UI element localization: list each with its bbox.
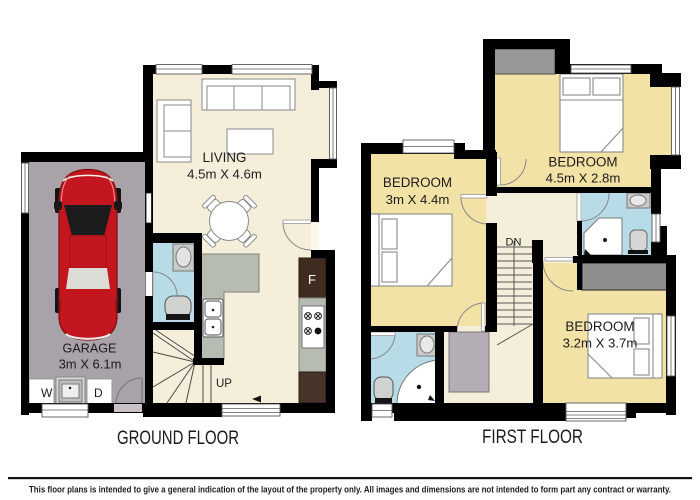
svg-text:3m X 6.1m: 3m X 6.1m (59, 357, 122, 372)
svg-text:GROUND FLOOR: GROUND FLOOR (117, 428, 239, 449)
svg-text:BEDROOM: BEDROOM (548, 155, 617, 170)
svg-text:DN: DN (506, 237, 522, 249)
svg-text:GARAGE: GARAGE (63, 342, 117, 356)
svg-text:D: D (94, 386, 103, 400)
svg-text:F: F (308, 272, 316, 287)
svg-text:FIRST FLOOR: FIRST FLOOR (482, 427, 583, 448)
svg-text:BEDROOM: BEDROOM (383, 175, 452, 190)
svg-text:3.2m X 3.7m: 3.2m X 3.7m (563, 336, 638, 351)
svg-text:This floor plans is intended t: This floor plans is intended to give a g… (29, 484, 671, 495)
svg-text:W: W (41, 386, 53, 400)
svg-text:4.5m X 4.6m: 4.5m X 4.6m (187, 167, 262, 182)
svg-text:UP: UP (216, 378, 232, 390)
svg-text:4.5m X 2.8m: 4.5m X 2.8m (546, 171, 621, 186)
svg-text:3m X 4.4m: 3m X 4.4m (386, 192, 450, 207)
svg-text:BEDROOM: BEDROOM (565, 319, 634, 334)
svg-text:LIVING: LIVING (203, 150, 247, 165)
